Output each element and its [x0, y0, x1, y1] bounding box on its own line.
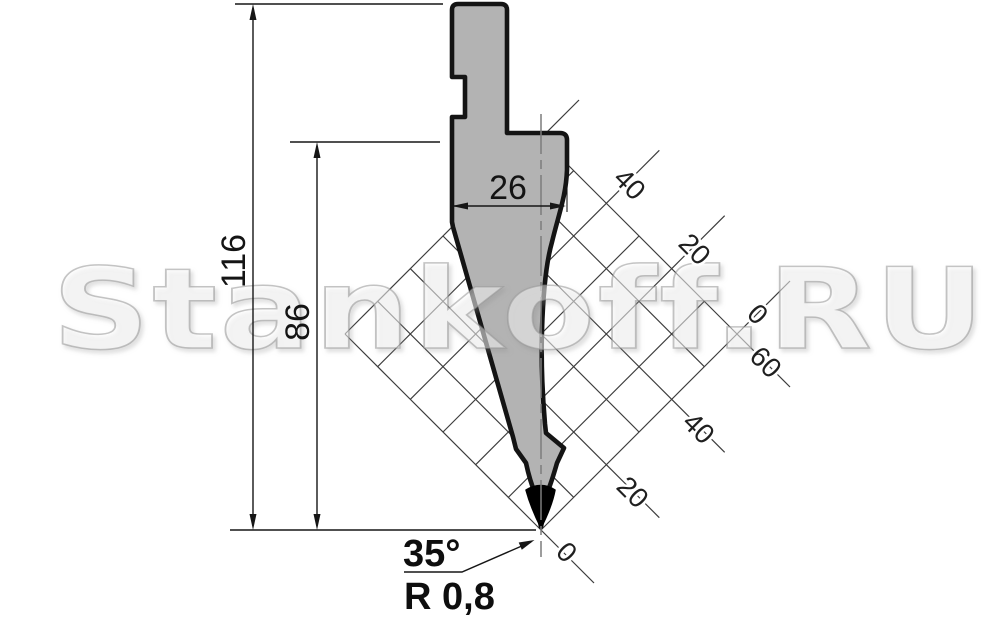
punch-drawing-svg: Stankoff.RU 116 86 26 35° R 0,8 40 20 0 … [0, 0, 1000, 618]
arrow-86-down [314, 514, 321, 530]
arrow-86-up [314, 142, 321, 158]
ruler-lower-0: 0 [550, 536, 583, 569]
dim-total-height: 116 [215, 234, 253, 288]
watermark-text: Stankoff.RU [52, 245, 987, 375]
dim-tip-angle: 35° [403, 533, 460, 575]
ruler-upper-40: 40 [608, 162, 652, 206]
dim-tip-radius: R 0,8 [404, 576, 495, 618]
arrow-116-down [250, 514, 257, 530]
ruler-lower-20: 20 [611, 470, 655, 514]
ruler-lower-40: 40 [677, 406, 721, 450]
arrow-116-up [250, 4, 257, 20]
dim-shoulder-height: 86 [279, 303, 317, 341]
arrow-leader-35 [519, 540, 535, 550]
dim-body-width: 26 [489, 169, 527, 207]
technical-drawing-canvas: Stankoff.RU 116 86 26 35° R 0,8 40 20 0 … [0, 0, 1000, 618]
